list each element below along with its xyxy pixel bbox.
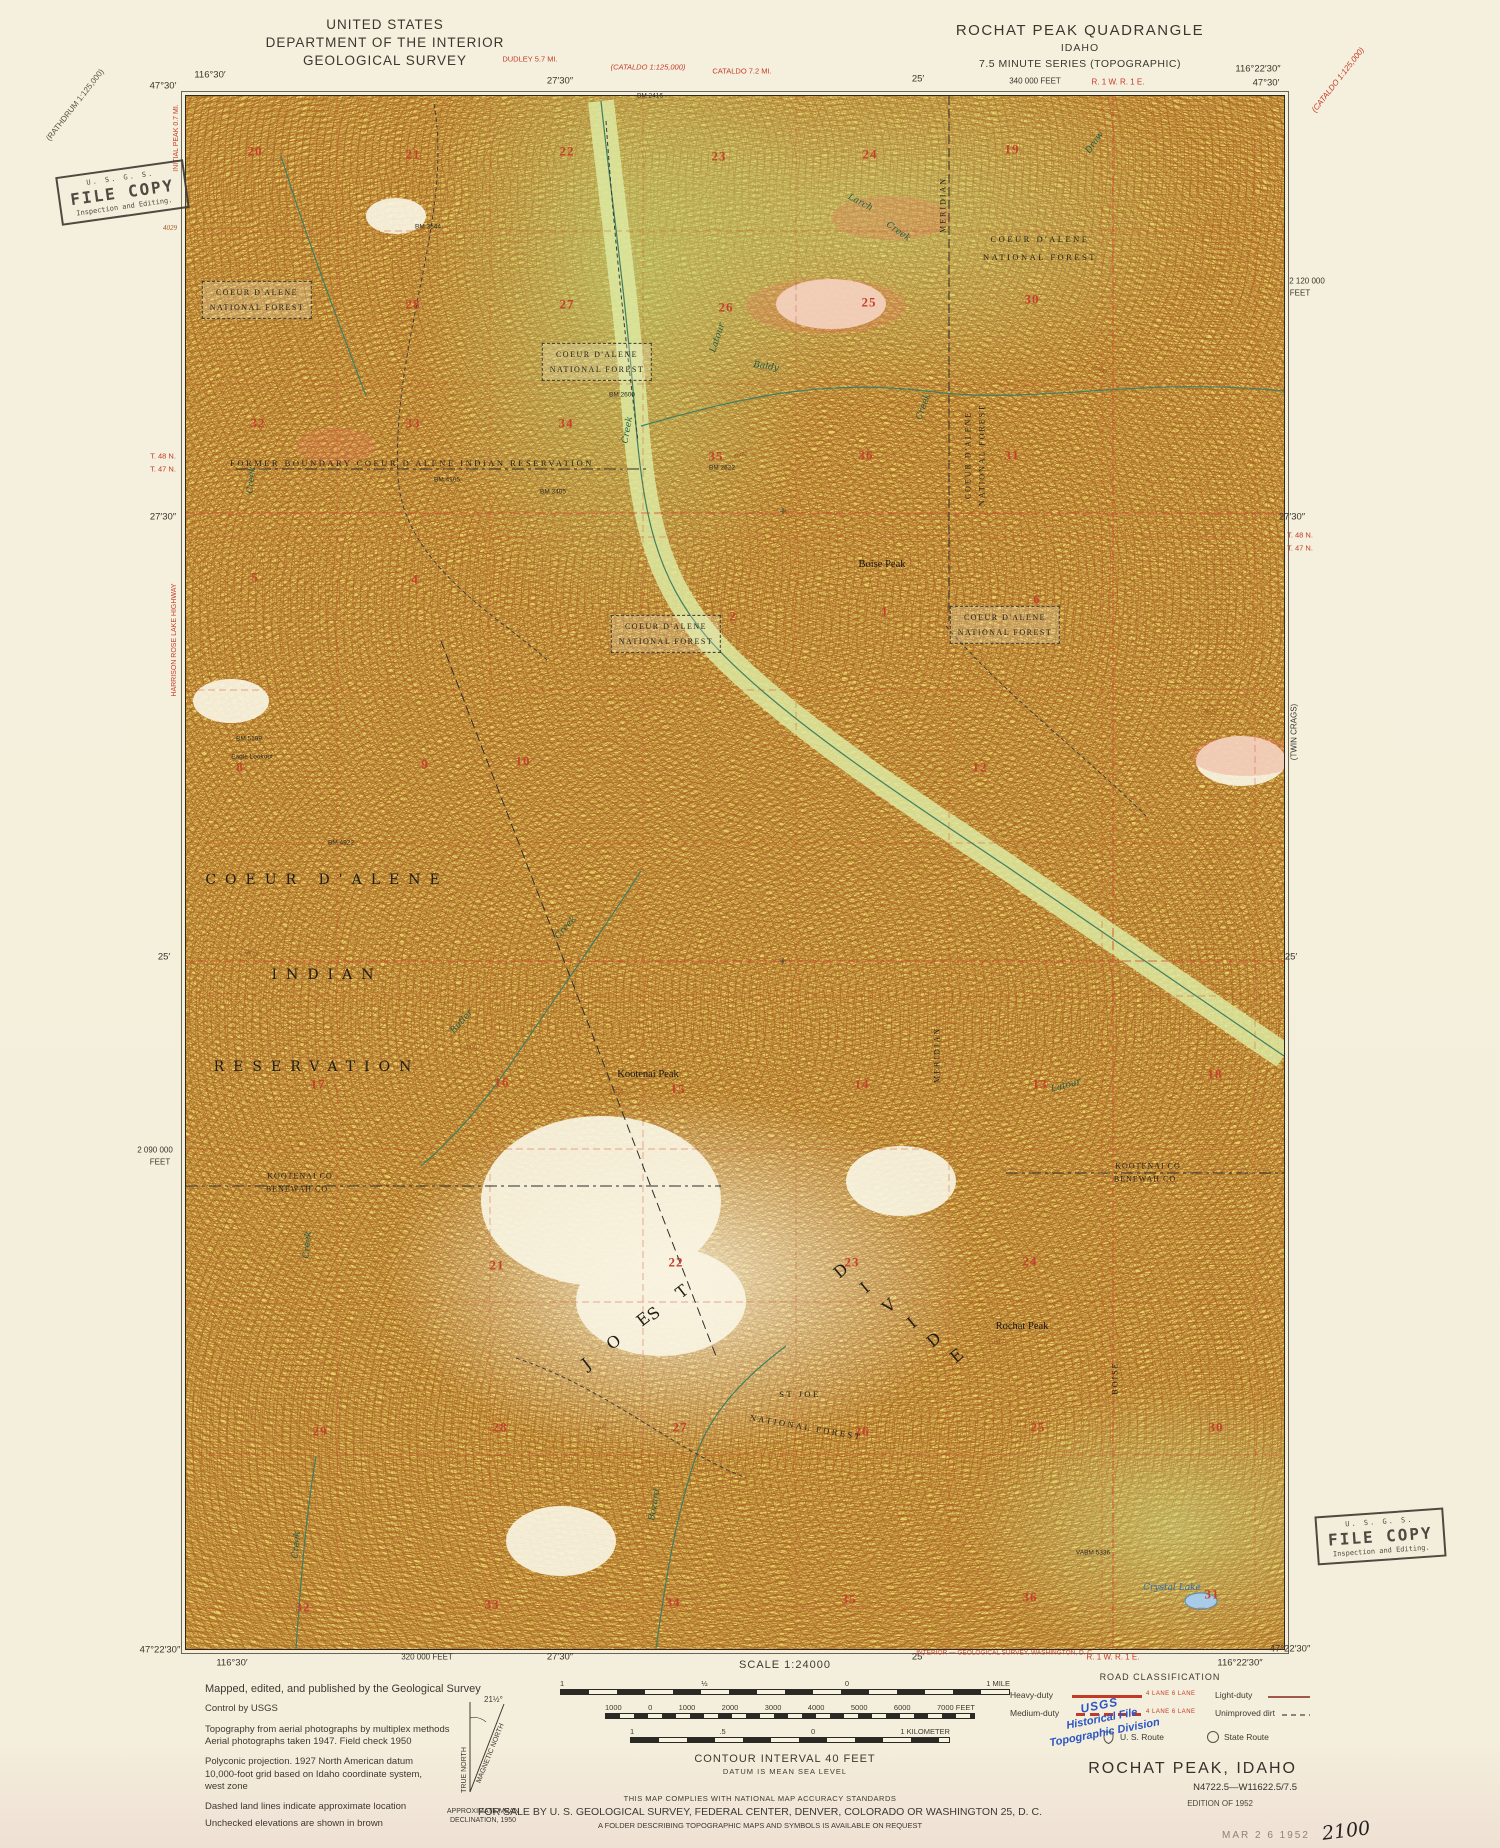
map-label: 2 <box>729 610 737 625</box>
map-label: ST JOE <box>779 1390 821 1400</box>
state-route-circle-icon <box>1206 1730 1220 1744</box>
svg-text:MAGNETIC NORTH: MAGNETIC NORTH <box>475 1723 505 1785</box>
collar-label: 320 000 FEET <box>401 1652 453 1661</box>
edition-note: EDITION OF 1952 <box>1187 1799 1253 1808</box>
km-labels: 1.501 KILOMETER <box>630 1727 950 1736</box>
map-label: BOISE <box>1110 1361 1119 1394</box>
collar-label: T. 48 N. <box>150 453 176 462</box>
sale-line: FOR SALE BY U. S. GEOLOGICAL SURVEY, FED… <box>410 1806 1110 1818</box>
map-label: BM 5199 <box>236 735 262 742</box>
map-label: 10 <box>516 755 531 770</box>
map-label: BENEWAH CO <box>266 1184 328 1193</box>
map-label: 12 <box>973 761 988 776</box>
road-class-title: ROAD CLASSIFICATION <box>1010 1672 1310 1682</box>
collar-label: 25′ <box>158 953 170 964</box>
map-label: Boise Peak <box>859 559 906 571</box>
map-label: 34 <box>666 1596 681 1611</box>
map-label: 25 <box>862 296 877 311</box>
map-label: 28 <box>406 298 421 313</box>
unimproved-label: Unimproved dirt <box>1215 1708 1275 1718</box>
map-label: 30 <box>1209 1421 1224 1436</box>
map-label: 20 <box>248 145 263 160</box>
collar-label: FEET <box>150 1157 170 1166</box>
collar-label: T. 47 N. <box>1287 545 1313 554</box>
map-label: Kootenai Peak <box>617 1069 679 1081</box>
collar-label: (TWIN CRAGS) <box>1289 704 1298 760</box>
map-label: 14 <box>855 1078 870 1093</box>
scale-title: SCALE 1:24000 <box>560 1659 1010 1671</box>
map-label: 27 <box>673 1421 688 1436</box>
map-label: 27 <box>560 298 575 313</box>
map-label: 4029 <box>163 224 177 232</box>
map-label: 33 <box>406 417 421 432</box>
miles-labels: 1½01 MILE <box>560 1679 1010 1688</box>
map-label: 32 <box>296 1601 311 1616</box>
collar-label: 116°22′30″ <box>1217 1659 1262 1670</box>
map-label: 25 <box>1031 1421 1046 1436</box>
svg-text:21½°: 21½° <box>484 1695 503 1704</box>
sheet-title-block: ROCHAT PEAK, IDAHO N4722.5—W11622.5/7.5 <box>1088 1760 1297 1793</box>
collar-label: DUDLEY 5.7 MI. <box>502 56 557 65</box>
map-label: NATIONAL FOREST <box>983 253 1097 263</box>
light-duty-label: Light-duty <box>1215 1690 1252 1700</box>
map-label: NATIONAL FOREST <box>977 404 986 506</box>
map-label: 36 <box>859 449 874 464</box>
quadrangle-header: ROCHAT PEAK QUADRANGLE IDAHO 7.5 MINUTE … <box>870 22 1290 70</box>
unimproved-line <box>1282 1714 1310 1716</box>
state-route-label: State Route <box>1224 1732 1269 1742</box>
map-label: 26 <box>719 301 734 316</box>
collar-label: 25′ <box>912 75 924 86</box>
collar-label: R. 1 W. R. 1 E. <box>1092 77 1145 86</box>
map-label: 18 <box>1208 1068 1223 1083</box>
collar-label: 2 090 000 <box>137 1145 173 1154</box>
collar-label: 47°22′30″ <box>1270 1645 1311 1656</box>
map-label: 1 <box>881 605 889 620</box>
map-label: BM 2416 <box>637 92 663 99</box>
agency-line1: UNITED STATES <box>255 16 515 34</box>
collar-label: 116°30′ <box>216 1659 247 1670</box>
map-label: KOOTENAI CO <box>267 1171 332 1180</box>
collar-label: 27′30″ <box>1279 513 1305 524</box>
map-label: 22 <box>560 145 575 160</box>
miles-bar <box>560 1689 1010 1695</box>
collar-label: T. 47 N. <box>150 466 176 475</box>
map-label: Rochat Peak <box>996 1321 1049 1333</box>
map-label: 31 <box>1005 449 1020 464</box>
map-label: + <box>779 955 786 969</box>
map-label: COEUR D'ALENE <box>991 235 1090 245</box>
svg-text:TRUE NORTH: TRUE NORTH <box>461 1747 468 1793</box>
map-label: RESERVATION <box>214 1059 421 1075</box>
map-label: INDIAN <box>272 967 383 983</box>
map-label: 21 <box>490 1259 505 1274</box>
map-label: FORMER BOUNDARY COEUR D'ALENE INDIAN RES… <box>230 459 594 469</box>
map-label: VABM 5336 <box>1076 1549 1110 1556</box>
map-label: COEUR D'ALENE <box>205 872 448 888</box>
datum-note: DATUM IS MEAN SEA LEVEL <box>560 1767 1010 1776</box>
map-label: BM 2600 <box>609 391 635 398</box>
sheet-number: N4722.5—W11622.5/7.5 <box>1088 1782 1297 1793</box>
collar-label: R. 1 W. R. 1 E. <box>1087 1652 1140 1661</box>
collar-label: 47°30′ <box>150 82 177 93</box>
map-label: COEUR D'ALENENATIONAL FOREST <box>611 615 721 653</box>
map-label: KOOTENAI CO <box>1115 1161 1180 1170</box>
collar-label: (CATALDO 1:125,000) <box>1310 46 1366 115</box>
map-label: 33 <box>485 1598 500 1613</box>
map-label: COEUR D'ALENENATIONAL FOREST <box>202 281 312 319</box>
agency-header: UNITED STATES DEPARTMENT OF THE INTERIOR… <box>255 16 515 71</box>
km-bar <box>630 1737 950 1743</box>
file-copy-stamp-bottom: U. S. G. S. FILE COPY Inspection and Edi… <box>1314 1508 1446 1566</box>
quad-series: 7.5 MINUTE SERIES (TOPOGRAPHIC) <box>870 58 1290 70</box>
collar-label: INTERIOR — GEOLOGICAL SURVEY, WASHINGTON… <box>916 1649 1094 1656</box>
light-duty-line <box>1268 1696 1310 1698</box>
file-copy-stamp-top: U. S. G. S. FILE COPY Inspection and Edi… <box>55 159 189 225</box>
map-label: 9 <box>421 758 429 773</box>
agency-line3: GEOLOGICAL SURVEY <box>255 52 515 70</box>
map-label: 32 <box>251 417 266 432</box>
map-label: 31 <box>1205 1588 1220 1603</box>
map-label: BENEWAH CO <box>1114 1174 1176 1183</box>
map-label: 35 <box>842 1593 857 1608</box>
accuracy-block: THIS MAP COMPLIES WITH NATIONAL MAP ACCU… <box>410 1794 1110 1830</box>
map-label: 15 <box>671 1083 686 1098</box>
collar-label: 116°22′30″ <box>1235 65 1280 76</box>
map-label: Crystal Lake <box>1143 1583 1201 1593</box>
heavy-duty-label: Heavy-duty <box>1010 1690 1053 1700</box>
map-label: 34 <box>559 417 574 432</box>
map-label: 19 <box>1005 143 1020 158</box>
quad-state: IDAHO <box>870 42 1290 54</box>
map-label: 28 <box>493 1421 508 1436</box>
map-label: COEUR D'ALENENATIONAL FOREST <box>950 606 1060 644</box>
map-label: BM 4105 <box>434 476 460 483</box>
map-label: 23 <box>712 150 727 165</box>
feet-labels: 100001000200030004000500060007000 FEET <box>605 1703 975 1712</box>
map-label: 17 <box>311 1078 326 1093</box>
sheet-name: ROCHAT PEAK, IDAHO <box>1088 1760 1297 1778</box>
map-label: 35 <box>709 450 724 465</box>
map-label: 24 <box>863 148 878 163</box>
collar-label: 47°30′ <box>1253 79 1280 90</box>
handwritten-number: 2100 <box>1321 1817 1372 1845</box>
map-label: 22 <box>669 1256 684 1271</box>
map-label: 30 <box>1025 293 1040 308</box>
map-label: 21 <box>406 148 421 163</box>
collar-label: 2 120 000 <box>1289 276 1325 285</box>
date-stamp: MAR 2 6 1952 <box>1222 1830 1310 1841</box>
declination-svg: 21½° TRUE NORTH MAGNETIC NORTH <box>428 1692 538 1800</box>
feet-bar <box>605 1713 975 1719</box>
collar-label: 340 000 FEET <box>1009 76 1061 85</box>
collar-label: T. 48 N. <box>1287 532 1313 541</box>
map-label: 4 <box>411 573 419 588</box>
collar-label: 47°22′30″ <box>140 1646 181 1657</box>
map-label: 36 <box>1023 1591 1038 1606</box>
map-label: MERIDIAN <box>938 177 947 233</box>
map-label: 6099 <box>1201 708 1215 716</box>
map-label: 8 <box>236 761 244 776</box>
map-label: BM 3544 <box>415 223 441 230</box>
collar-label: CATALDO 7.2 MI. <box>712 68 771 77</box>
map-label: BM 4922 <box>328 839 354 846</box>
map-label: 13 <box>1033 1078 1048 1093</box>
map-label: + <box>779 505 786 519</box>
collar-label: 25′ <box>1285 953 1297 964</box>
quad-title: ROCHAT PEAK QUADRANGLE <box>870 22 1290 39</box>
collar-label: 27′30″ <box>547 77 573 88</box>
map-label: 16 <box>495 1076 510 1091</box>
contour-interval: CONTOUR INTERVAL 40 FEET <box>560 1753 1010 1765</box>
map-label: 24 <box>1023 1255 1038 1270</box>
map-label: 5 <box>251 571 259 586</box>
map-label: MERIDIAN <box>932 1027 941 1083</box>
agency-line2: DEPARTMENT OF THE INTERIOR <box>255 34 515 52</box>
collar-label: HARRISON ROSE LAKE HIGHWAY <box>171 583 179 696</box>
collar-label: FEET <box>1290 288 1310 297</box>
map-label: COEUR D'ALENE <box>963 411 972 500</box>
map-label: 5464 <box>609 1088 623 1096</box>
map-label: BM 3405 <box>540 488 566 495</box>
map-sheet: UNITED STATES DEPARTMENT OF THE INTERIOR… <box>0 0 1500 1848</box>
map-label: COEUR D'ALENENATIONAL FOREST <box>542 343 652 381</box>
folder-line: A FOLDER DESCRIBING TOPOGRAPHIC MAPS AND… <box>410 1821 1110 1830</box>
collar-label: (RATHDRUM 1:125,000) <box>44 67 106 142</box>
map-label: 5643 <box>990 1338 1004 1346</box>
accuracy-line: THIS MAP COMPLIES WITH NATIONAL MAP ACCU… <box>410 1794 1110 1803</box>
map-label: BM 2622 <box>709 464 735 471</box>
scale-block: SCALE 1:24000 1½01 MILE 1000010002000300… <box>560 1659 1010 1776</box>
collar-label: 116°30′ <box>194 71 225 82</box>
collar-label: (CATALDO 1:125,000) <box>611 64 686 73</box>
collar-label: 27′30″ <box>150 513 176 524</box>
map-label: 29 <box>313 1425 328 1440</box>
map-label: Eagle Lookout <box>231 753 273 760</box>
